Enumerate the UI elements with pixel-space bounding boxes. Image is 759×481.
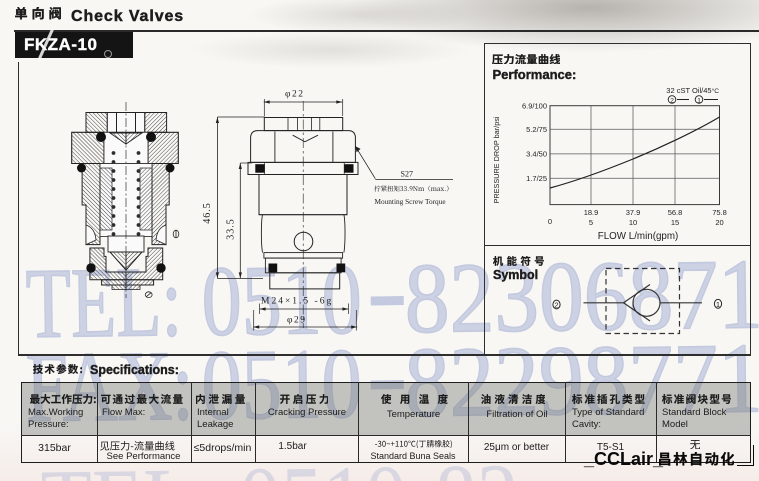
svg-text:FLOW L/min(gpm): FLOW L/min(gpm) [598,231,679,242]
svg-text:M24×1.5 -6g: M24×1.5 -6g [261,297,333,307]
svg-text:5.2/75: 5.2/75 [526,125,547,134]
svg-text:1: 1 [697,97,701,104]
svg-text:10: 10 [629,218,637,227]
svg-text:0: 0 [548,217,552,226]
svg-text:2: 2 [670,97,674,104]
svg-text:37.9: 37.9 [626,208,641,217]
svg-text:φ29: φ29 [287,316,306,326]
svg-text:PRESSURE DROP bar/psi: PRESSURE DROP bar/psi [492,116,501,203]
svg-text:46.5: 46.5 [202,202,213,224]
svg-text:18.9: 18.9 [584,208,599,217]
svg-text:15: 15 [671,218,679,227]
svg-text:3.4/50: 3.4/50 [526,150,547,159]
svg-text:2: 2 [554,301,558,310]
svg-text:1: 1 [716,300,720,309]
svg-text:32 cST Oil/45°C: 32 cST Oil/45°C [666,86,719,95]
svg-text:5: 5 [589,218,593,227]
svg-text:S27: S27 [401,170,413,179]
svg-text:56.8: 56.8 [668,208,683,217]
svg-text:6.9/100: 6.9/100 [522,102,547,111]
svg-text:75.8: 75.8 [712,208,727,217]
svg-text:20: 20 [715,218,723,227]
svg-text:1.7/25: 1.7/25 [526,174,547,183]
svg-text:φ22: φ22 [285,90,304,100]
svg-text:Mounting Screw Torque: Mounting Screw Torque [375,197,446,206]
svg-text:33.5: 33.5 [226,218,237,240]
